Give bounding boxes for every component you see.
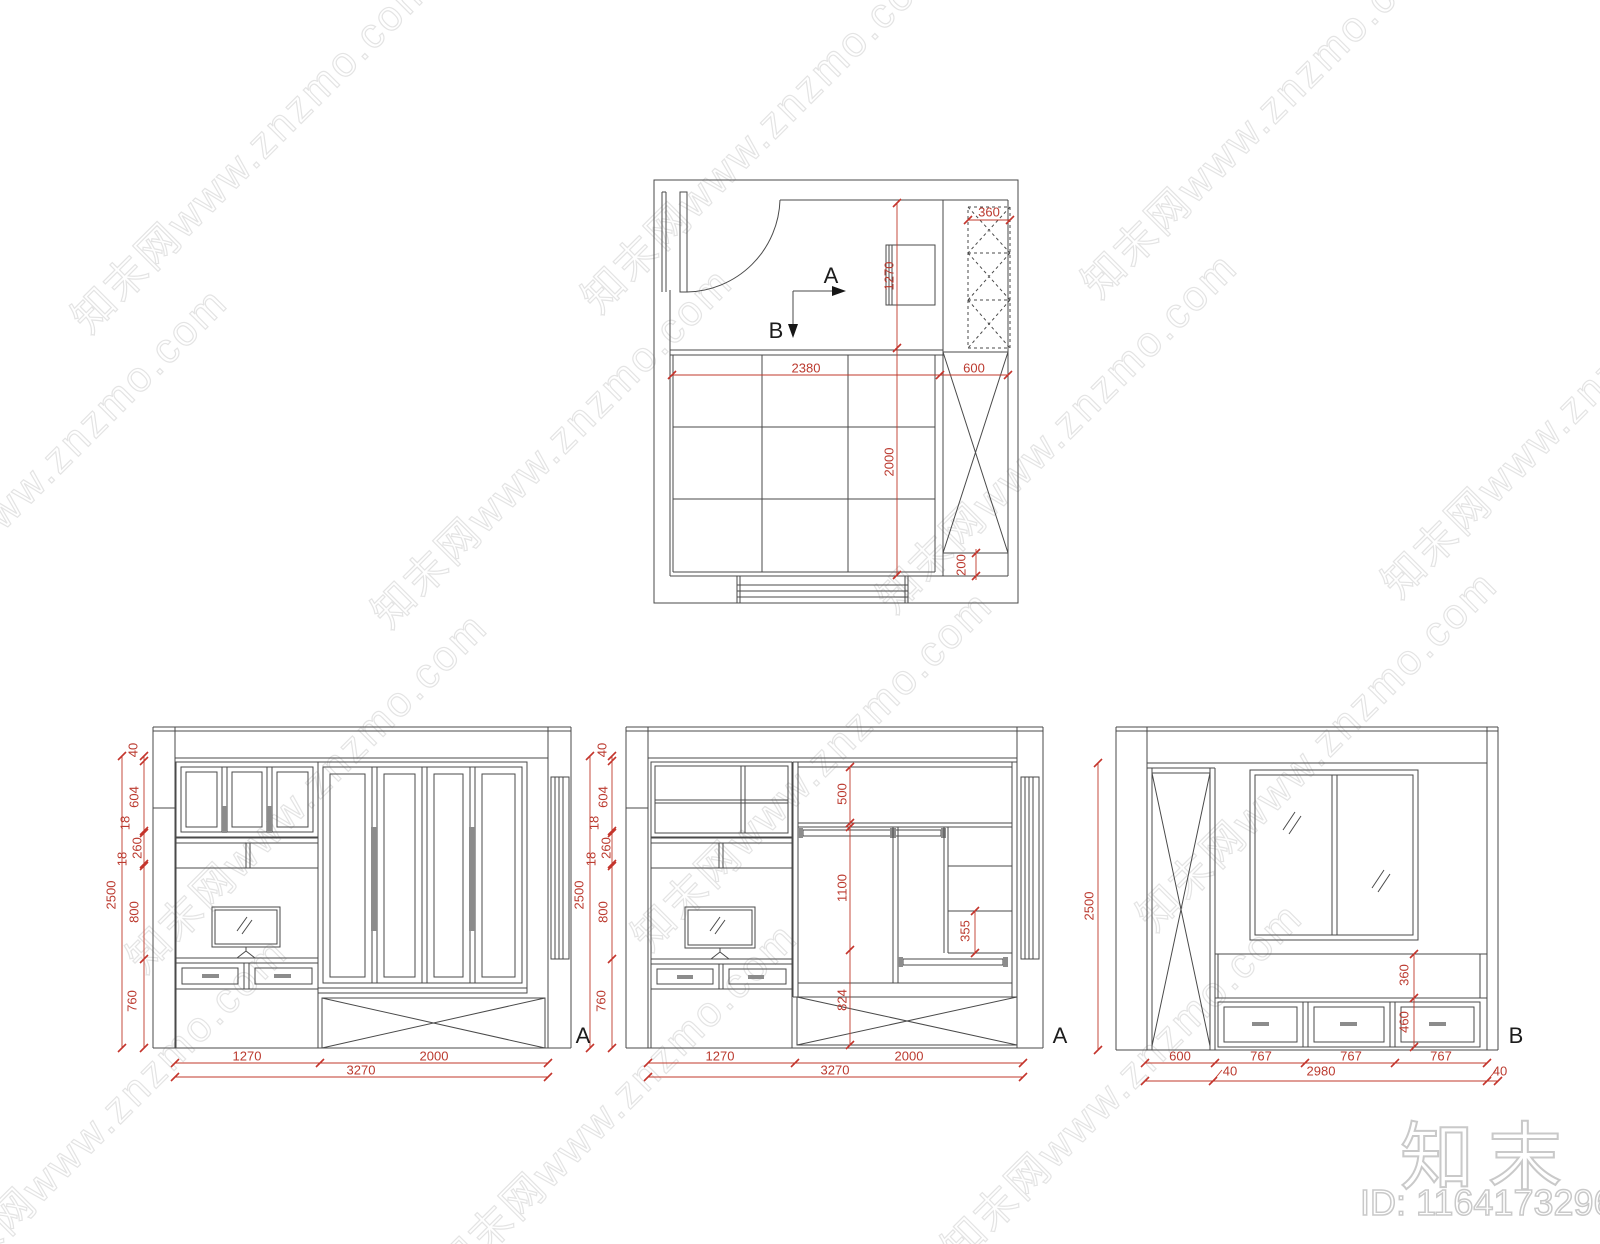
dim-chain: 18 (118, 816, 133, 830)
dim-height: 2500 (1082, 892, 1097, 921)
dim-side-return: 200 (954, 554, 969, 576)
dim-upper-cab-depth: 360 (978, 205, 1000, 220)
dim-bottom: 2000 (895, 1049, 924, 1064)
dim-chain: 260 (599, 837, 614, 859)
dim-shelf-gap: 355 (958, 920, 973, 942)
bed-cross-box (797, 997, 1017, 1045)
dim-bottom: 767 (1250, 1049, 1272, 1064)
open-shelf-band (651, 838, 792, 868)
bed-plan (670, 350, 943, 572)
dim-bottom: 767 (1340, 1049, 1362, 1064)
dim-top-shelf: 500 (835, 783, 850, 805)
hanging-rod-low (903, 959, 1003, 965)
dim-hanging: 1100 (835, 874, 850, 902)
dim-chain: 800 (596, 901, 611, 923)
dim-bottom-total: 3270 (347, 1063, 376, 1078)
elevation-label-b: B (1509, 1023, 1524, 1049)
door-swing-arc (687, 200, 780, 292)
dim-chain: 18 (115, 852, 130, 866)
window-seat-plan (737, 576, 908, 603)
wardrobe-interior (793, 762, 1017, 997)
dim-chain: 40 (126, 743, 141, 757)
tv (685, 907, 755, 959)
pilaster (551, 777, 569, 959)
door-jamb (662, 192, 666, 292)
elevation-b (1094, 727, 1502, 1085)
section-markers (788, 286, 846, 338)
upper-cabinet (176, 762, 318, 837)
dim-bottom-total: 3270 (821, 1063, 850, 1078)
dim-seat-back: 360 (1397, 964, 1412, 986)
dim-height: 2500 (104, 881, 119, 910)
dim-bed-length: 2000 (882, 448, 897, 477)
drawer-band (651, 964, 792, 989)
dim-bottom2: 40 (1493, 1064, 1507, 1079)
dim-height: 2500 (572, 881, 587, 910)
dim-entry-depth: 1270 (882, 262, 897, 291)
wardrobe-doors (318, 762, 527, 993)
dim-chain: 18 (587, 816, 602, 830)
door-leaf (680, 192, 687, 292)
open-shelf-band (176, 838, 318, 868)
dim-chain: 604 (596, 786, 611, 808)
dim-chain: 760 (594, 990, 609, 1012)
plan-view (654, 180, 1018, 603)
dim-bottom2: 2980 (1307, 1064, 1336, 1079)
dim-bottom: 767 (1430, 1049, 1452, 1064)
dim-chain: 604 (127, 786, 142, 808)
wardrobe-section (1147, 768, 1215, 1050)
dim-bottom: 1270 (706, 1049, 735, 1064)
window (1250, 770, 1418, 940)
dim-bottom: 600 (1169, 1049, 1191, 1064)
image-id: ID: 1164173296 (1360, 1182, 1600, 1224)
dim-base: 824 (835, 989, 850, 1011)
elevation-a-exterior (118, 727, 571, 1081)
section-marker-a: A (824, 263, 839, 289)
elevation-label-a: A (1053, 1023, 1068, 1049)
section-marker-b: B (769, 318, 784, 344)
dim-chain: 260 (130, 837, 145, 859)
dim-wardrobe-width: 600 (963, 361, 985, 376)
pilaster (1021, 777, 1039, 959)
bed-cross-box (322, 998, 545, 1048)
dim-bottom: 1270 (233, 1049, 262, 1064)
dim-bottom: 2000 (420, 1049, 449, 1064)
dim-bottom2: 40 (1223, 1064, 1237, 1079)
dim-chain: 760 (125, 990, 140, 1012)
tv (212, 907, 280, 958)
seat-drawers (1218, 1002, 1480, 1047)
dim-chain: 800 (127, 901, 142, 923)
cad-sheet: 知末网www.znzmo.com 知末网www.znzmo.com 知末网www… (0, 0, 1600, 1244)
upper-cabinet-open (651, 762, 792, 837)
elevation-label-a: A (576, 1023, 591, 1049)
dim-chain: 40 (595, 743, 610, 757)
overhead-cabinet-plan (968, 207, 1010, 348)
drawer-band (176, 963, 318, 989)
wardrobe-plan (943, 200, 1008, 576)
hanging-rod (803, 830, 941, 836)
dim-bed-width: 2380 (792, 361, 821, 376)
dim-chain: 18 (584, 852, 599, 866)
dim-drawer: 460 (1397, 1011, 1412, 1033)
elevation-a-interior (586, 727, 1043, 1081)
window-seat (1215, 954, 1487, 998)
